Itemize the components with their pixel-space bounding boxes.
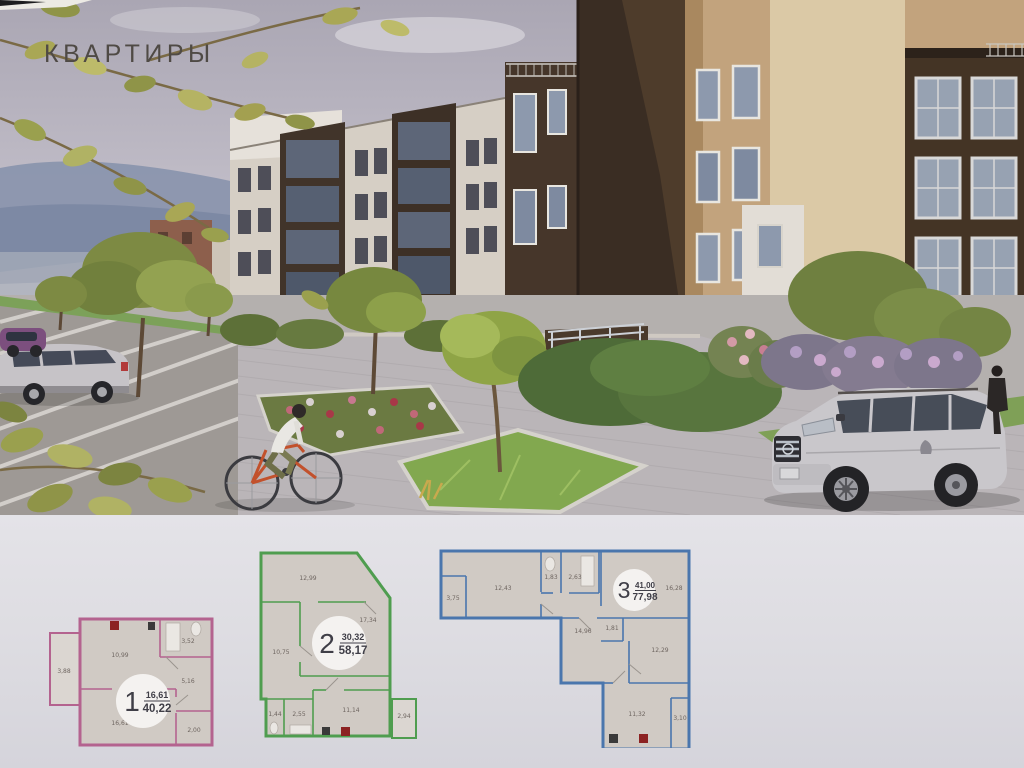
svg-text:41,00: 41,00 xyxy=(635,581,656,590)
room-label: 3,75 xyxy=(446,595,460,602)
room-label: 14,96 xyxy=(574,628,591,635)
minivan xyxy=(0,344,139,406)
toilet-icon xyxy=(191,622,201,636)
bathtub-icon xyxy=(166,623,180,651)
room-label: 12,43 xyxy=(494,585,511,592)
room-label: 2,63 xyxy=(568,574,582,581)
room-label: 1,83 xyxy=(544,574,558,581)
svg-text:30,32: 30,32 xyxy=(342,632,365,642)
svg-text:2: 2 xyxy=(319,628,335,659)
room-label: 11,14 xyxy=(342,707,359,714)
svg-text:77,98: 77,98 xyxy=(632,592,657,603)
washer-icon xyxy=(341,727,350,736)
room-label: 3,52 xyxy=(181,638,195,645)
floor-plan-3: 3,75 12,43 1,83 2,63 16,28 14,96 1,81 12… xyxy=(431,546,699,748)
room-label: 17,34 xyxy=(359,617,376,624)
room-label: 2,00 xyxy=(187,727,201,734)
wardrobe-icon xyxy=(322,727,330,735)
room-label: 2,55 xyxy=(292,711,306,718)
svg-text:16,61: 16,61 xyxy=(146,690,169,700)
room-label: 10,75 xyxy=(272,649,289,656)
scene xyxy=(0,0,1024,515)
room-label: 12,99 xyxy=(299,575,316,582)
room-label: 5,16 xyxy=(181,678,195,685)
room-label: 1,81 xyxy=(605,625,619,632)
room-label: 2,94 xyxy=(397,713,411,720)
toilet-icon xyxy=(270,722,278,734)
page-title: КВАРТИРЫ xyxy=(44,40,215,69)
room-label: 16,28 xyxy=(665,585,682,592)
room-label: 3,88 xyxy=(57,668,71,675)
floor-plan-2: 12,99 17,34 10,75 1,44 2,55 11,14 2,94 2… xyxy=(256,550,422,750)
svg-text:1: 1 xyxy=(124,686,140,717)
dark-tower xyxy=(578,0,685,340)
wardrobe-icon xyxy=(609,734,618,743)
bathtub-icon xyxy=(581,556,594,586)
billboard-photo: КВАРТИРЫ 3,88 10,99 3,5 xyxy=(0,0,1024,768)
room-label: 3,10 xyxy=(673,715,687,722)
room-label: 11,32 xyxy=(628,711,645,718)
architectural-rendering: КВАРТИРЫ xyxy=(0,0,1024,515)
room-label: 12,29 xyxy=(651,647,668,654)
toilet-icon xyxy=(545,557,555,571)
svg-text:3: 3 xyxy=(618,577,631,603)
wardrobe-icon xyxy=(148,622,155,630)
svg-text:40,22: 40,22 xyxy=(143,703,172,715)
washer-icon xyxy=(639,734,648,743)
brick-section xyxy=(505,62,578,335)
bathtub-icon xyxy=(290,725,311,734)
svg-text:58,17: 58,17 xyxy=(339,645,368,657)
room-label: 10,99 xyxy=(111,652,128,659)
floor-plan-1: 3,88 10,99 3,52 5,16 16,61 2,00 1 16,61 … xyxy=(48,613,216,751)
poster-section: 3,88 10,99 3,52 5,16 16,61 2,00 1 16,61 … xyxy=(0,515,1024,768)
room-label: 1,44 xyxy=(268,711,282,718)
washer-icon xyxy=(110,621,119,630)
